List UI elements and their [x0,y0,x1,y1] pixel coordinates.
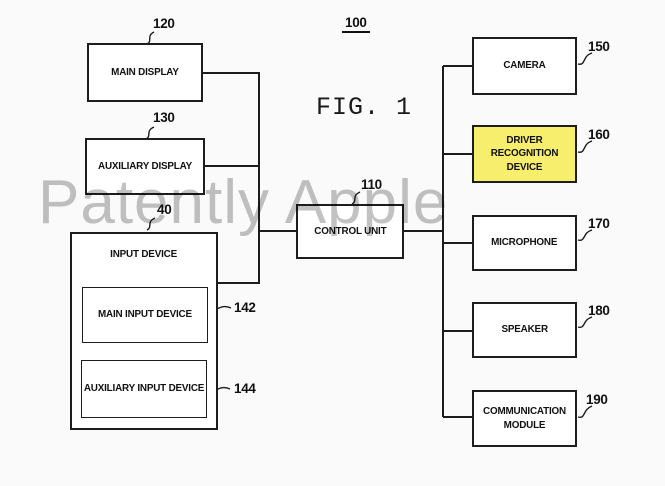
ref-160: 160 [588,127,610,142]
microphone-label: MICROPHONE [491,236,557,249]
ref-144: 144 [234,381,256,396]
ref-190: 190 [586,392,608,407]
auxiliary-display-box: AUXILIARY DISPLAY [85,138,205,195]
leader-180 [578,317,592,327]
communication-module-box: COMMUNICATION MODULE [472,390,577,447]
communication-module-label: COMMUNICATION MODULE [477,405,572,431]
patent-figure: 100 FIG. 1 MAIN DISPLAY 120 AUXILIARY DI… [0,0,665,486]
auxiliary-input-device-box: AUXILIARY INPUT DEVICE [81,360,207,418]
ref-150: 150 [588,39,610,54]
leader-160 [578,141,592,152]
leader-170 [578,230,592,240]
figure-caption: FIG. 1 [316,93,412,122]
auxiliary-display-label: AUXILIARY DISPLAY [98,160,192,173]
ref-130: 130 [153,110,175,125]
leader-190 [578,406,592,417]
auxiliary-input-device-label: AUXILIARY INPUT DEVICE [84,382,204,395]
leader-40 [147,218,155,230]
ref-180: 180 [588,303,610,318]
figure-ref-number: 100 [342,15,370,33]
ref-40: 40 [157,202,171,217]
speaker-label: SPEAKER [501,323,547,336]
ref-120: 120 [153,16,175,31]
main-input-device-label: MAIN INPUT DEVICE [98,308,192,321]
camera-label: CAMERA [503,59,545,72]
leader-110 [352,192,360,204]
camera-box: CAMERA [472,37,577,95]
main-display-box: MAIN DISPLAY [87,43,203,102]
control-unit-label: CONTROL UNIT [314,225,386,238]
microphone-box: MICROPHONE [472,215,577,271]
speaker-box: SPEAKER [472,302,577,358]
leader-150 [578,53,592,64]
main-input-device-box: MAIN INPUT DEVICE [82,287,208,343]
ref-110: 110 [361,177,382,192]
ref-142: 142 [234,300,256,315]
input-device-label: INPUT DEVICE [111,248,178,261]
driver-recognition-device-label: DRIVER RECOGNITION DEVICE [477,134,572,173]
driver-recognition-device-box: DRIVER RECOGNITION DEVICE [472,125,577,183]
ref-170: 170 [588,216,610,231]
main-display-label: MAIN DISPLAY [111,66,179,79]
control-unit-box: CONTROL UNIT [296,204,404,259]
